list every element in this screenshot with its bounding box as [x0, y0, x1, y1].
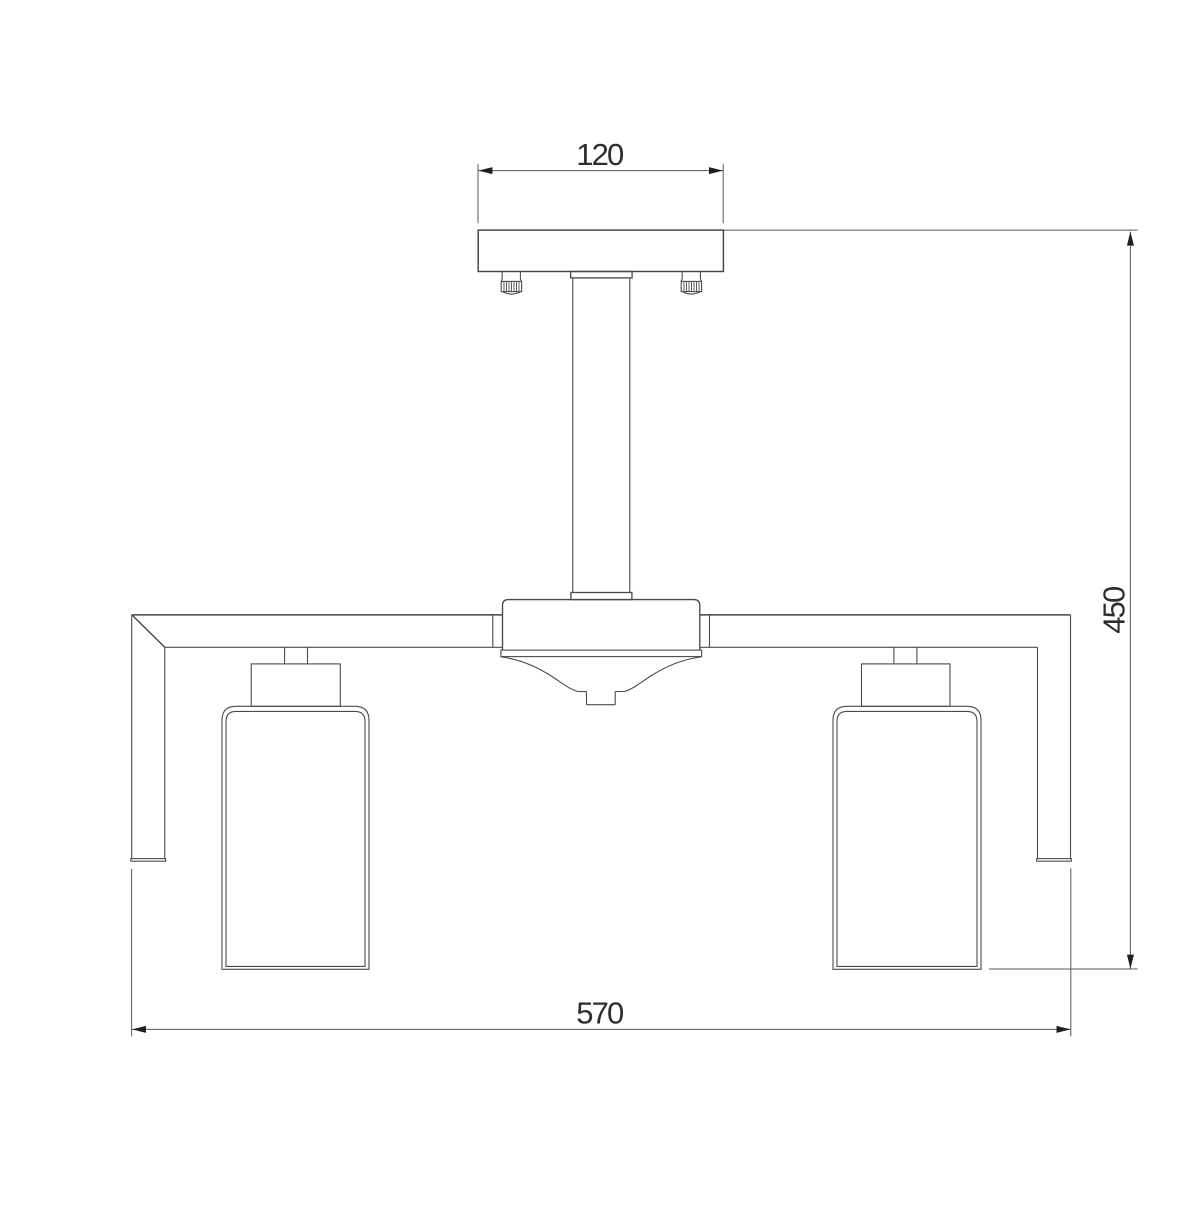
svg-text:120: 120 [576, 137, 624, 172]
svg-text:570: 570 [576, 996, 624, 1031]
svg-text:450: 450 [1097, 586, 1132, 634]
